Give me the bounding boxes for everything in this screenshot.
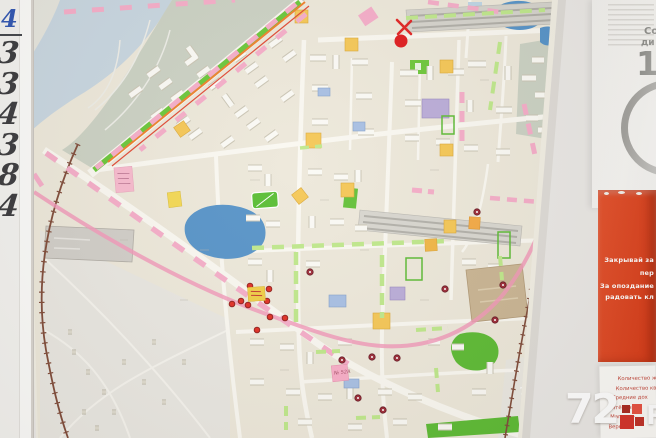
handwritten-digit: 4 [0,192,27,223]
torn-edge-speck [636,192,642,195]
logo-square [622,405,630,413]
handwritten-digit: 8 [0,161,27,192]
photo-of-annotated-city-map: № 52А 4 3 3 4 3 8 4 Со ди 1 Закр [0,0,656,438]
poster-line: пер [598,269,654,277]
stats-line: Количество ж [618,375,656,385]
watermark-ru: RU [646,403,656,430]
info-sheet: Со ди 1 [592,0,656,208]
watermark-72ru: 72 RU [565,389,656,430]
poster-line: радовать кл [598,293,654,301]
handwritten-digit: 4 [0,100,27,131]
logo-square [632,404,642,414]
map-content: № 52А [26,0,558,438]
handwritten-digit: 3 [0,131,27,162]
poster-line: Закрывай за [598,256,654,264]
handwritten-header: 4 [0,4,22,36]
handwritten-column: 4 3 3 4 3 8 4 [0,4,25,222]
handwritten-digit: 3 [0,39,27,70]
whiteboard-edge: 4 3 3 4 3 8 4 [0,0,34,438]
watermark-72: 72 [565,389,618,430]
plastic-glare [592,0,656,208]
torn-edge-speck [618,191,625,194]
poster-line: За опоздание [598,282,654,290]
red-poster: Закрывай за пер За опоздание радовать кл [598,190,656,362]
watermark-pixel-logo [620,404,645,429]
torn-edge-speck [604,192,609,195]
logo-square [635,417,644,426]
handwritten-digit: 3 [0,70,27,101]
logo-square [620,415,634,429]
city-map: № 52А [0,0,656,438]
